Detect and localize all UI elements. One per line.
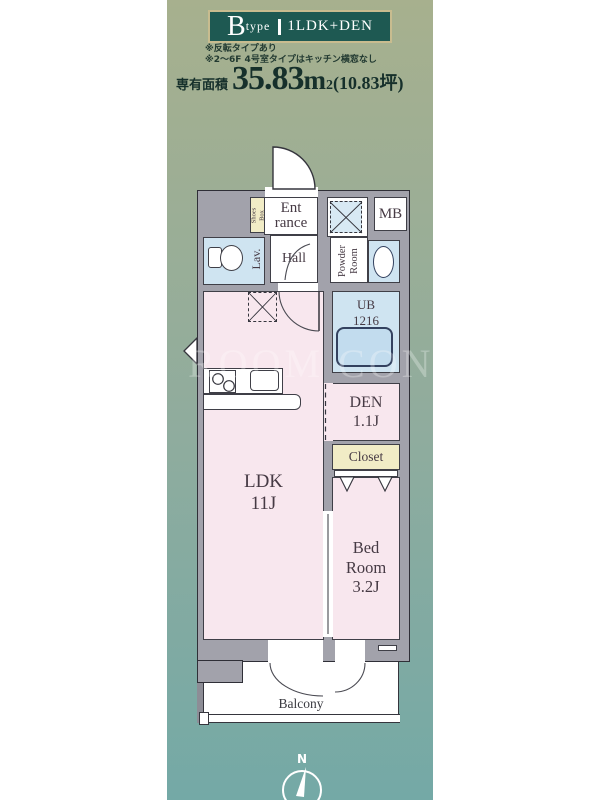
- compass-north-label: N: [294, 752, 310, 766]
- fridge-space-icon: [248, 292, 277, 322]
- powder-room-label-2: Room: [349, 248, 361, 274]
- bedroom-label-1: Bed: [353, 538, 380, 558]
- room-entrance: Ent rance: [264, 197, 318, 235]
- type-word: type: [246, 19, 271, 34]
- room-bedroom: Bed Room 3.2J: [332, 477, 400, 640]
- entrance-label-1: Ent: [281, 201, 302, 216]
- wall-vent: [378, 645, 397, 651]
- den-label-1: DEN: [350, 393, 383, 412]
- bedroom-label-3: 3.2J: [352, 577, 379, 597]
- ldk-label-1: LDK: [244, 471, 283, 493]
- lavatory-label: Lav.: [249, 249, 264, 270]
- shoes-box-label-1: Shoes: [250, 207, 257, 223]
- room-hall: Hall: [270, 235, 318, 283]
- floor-area-label: 専有面積: [176, 74, 228, 93]
- balcony-door-opening-ldk: [268, 640, 323, 663]
- remark-line-1: ※反転タイプあり: [205, 44, 435, 55]
- floorplan-page: { "header": { "type_letter": "B", "type_…: [0, 0, 600, 800]
- hall-label: Hall: [282, 251, 306, 267]
- mb-label: MB: [379, 206, 402, 223]
- closet-pole: [334, 470, 398, 477]
- washbasin-icon: [373, 246, 394, 278]
- balcony-railing: [208, 714, 400, 723]
- room-shoes-box: Shoes Box: [250, 197, 265, 233]
- floor-area-tsubo: (10.83坪): [333, 69, 404, 95]
- sliding-door: [323, 511, 333, 637]
- floor-area-unit: m: [304, 65, 327, 96]
- type-letter: B: [227, 13, 246, 41]
- ub-label-1: UB: [357, 297, 375, 313]
- layout-label: 1LDK+DEN: [287, 18, 373, 35]
- ldk-label-2: 11J: [251, 493, 277, 515]
- balcony-side-wall: [197, 660, 243, 683]
- balcony-door-opening-bedroom: [335, 640, 365, 663]
- washing-machine-icon: [330, 201, 362, 233]
- plan-type-header: B type 1LDK+DEN: [208, 10, 392, 43]
- header-divider: [278, 19, 281, 35]
- balcony-railing-end: [199, 712, 209, 725]
- room-closet: Closet: [332, 444, 400, 470]
- balcony-label: Balcony: [279, 696, 324, 712]
- toilet-bowl-icon: [220, 245, 243, 271]
- bedroom-label-2: Room: [346, 558, 386, 578]
- entrance-label-2: rance: [275, 216, 307, 231]
- room-den: DEN 1.1J: [332, 383, 400, 441]
- floor-area-value: 35.83: [232, 60, 304, 98]
- den-label-2: 1.1J: [353, 412, 379, 431]
- counter-shelf: [203, 394, 301, 410]
- floor-area: 専有面積 35.83 m 2 (10.83坪): [176, 60, 432, 98]
- room-mb: MB: [374, 197, 407, 231]
- lavatory-label-box: Lav.: [246, 239, 266, 279]
- powder-room-label-box: Powder Room: [336, 237, 362, 285]
- watermark: ROOM CONC: [188, 340, 448, 387]
- powder-room-label-1: Powder: [337, 245, 349, 277]
- den-entry-opening: [324, 383, 333, 441]
- ub-label-2: 1216: [353, 313, 379, 329]
- closet-label: Closet: [349, 449, 384, 465]
